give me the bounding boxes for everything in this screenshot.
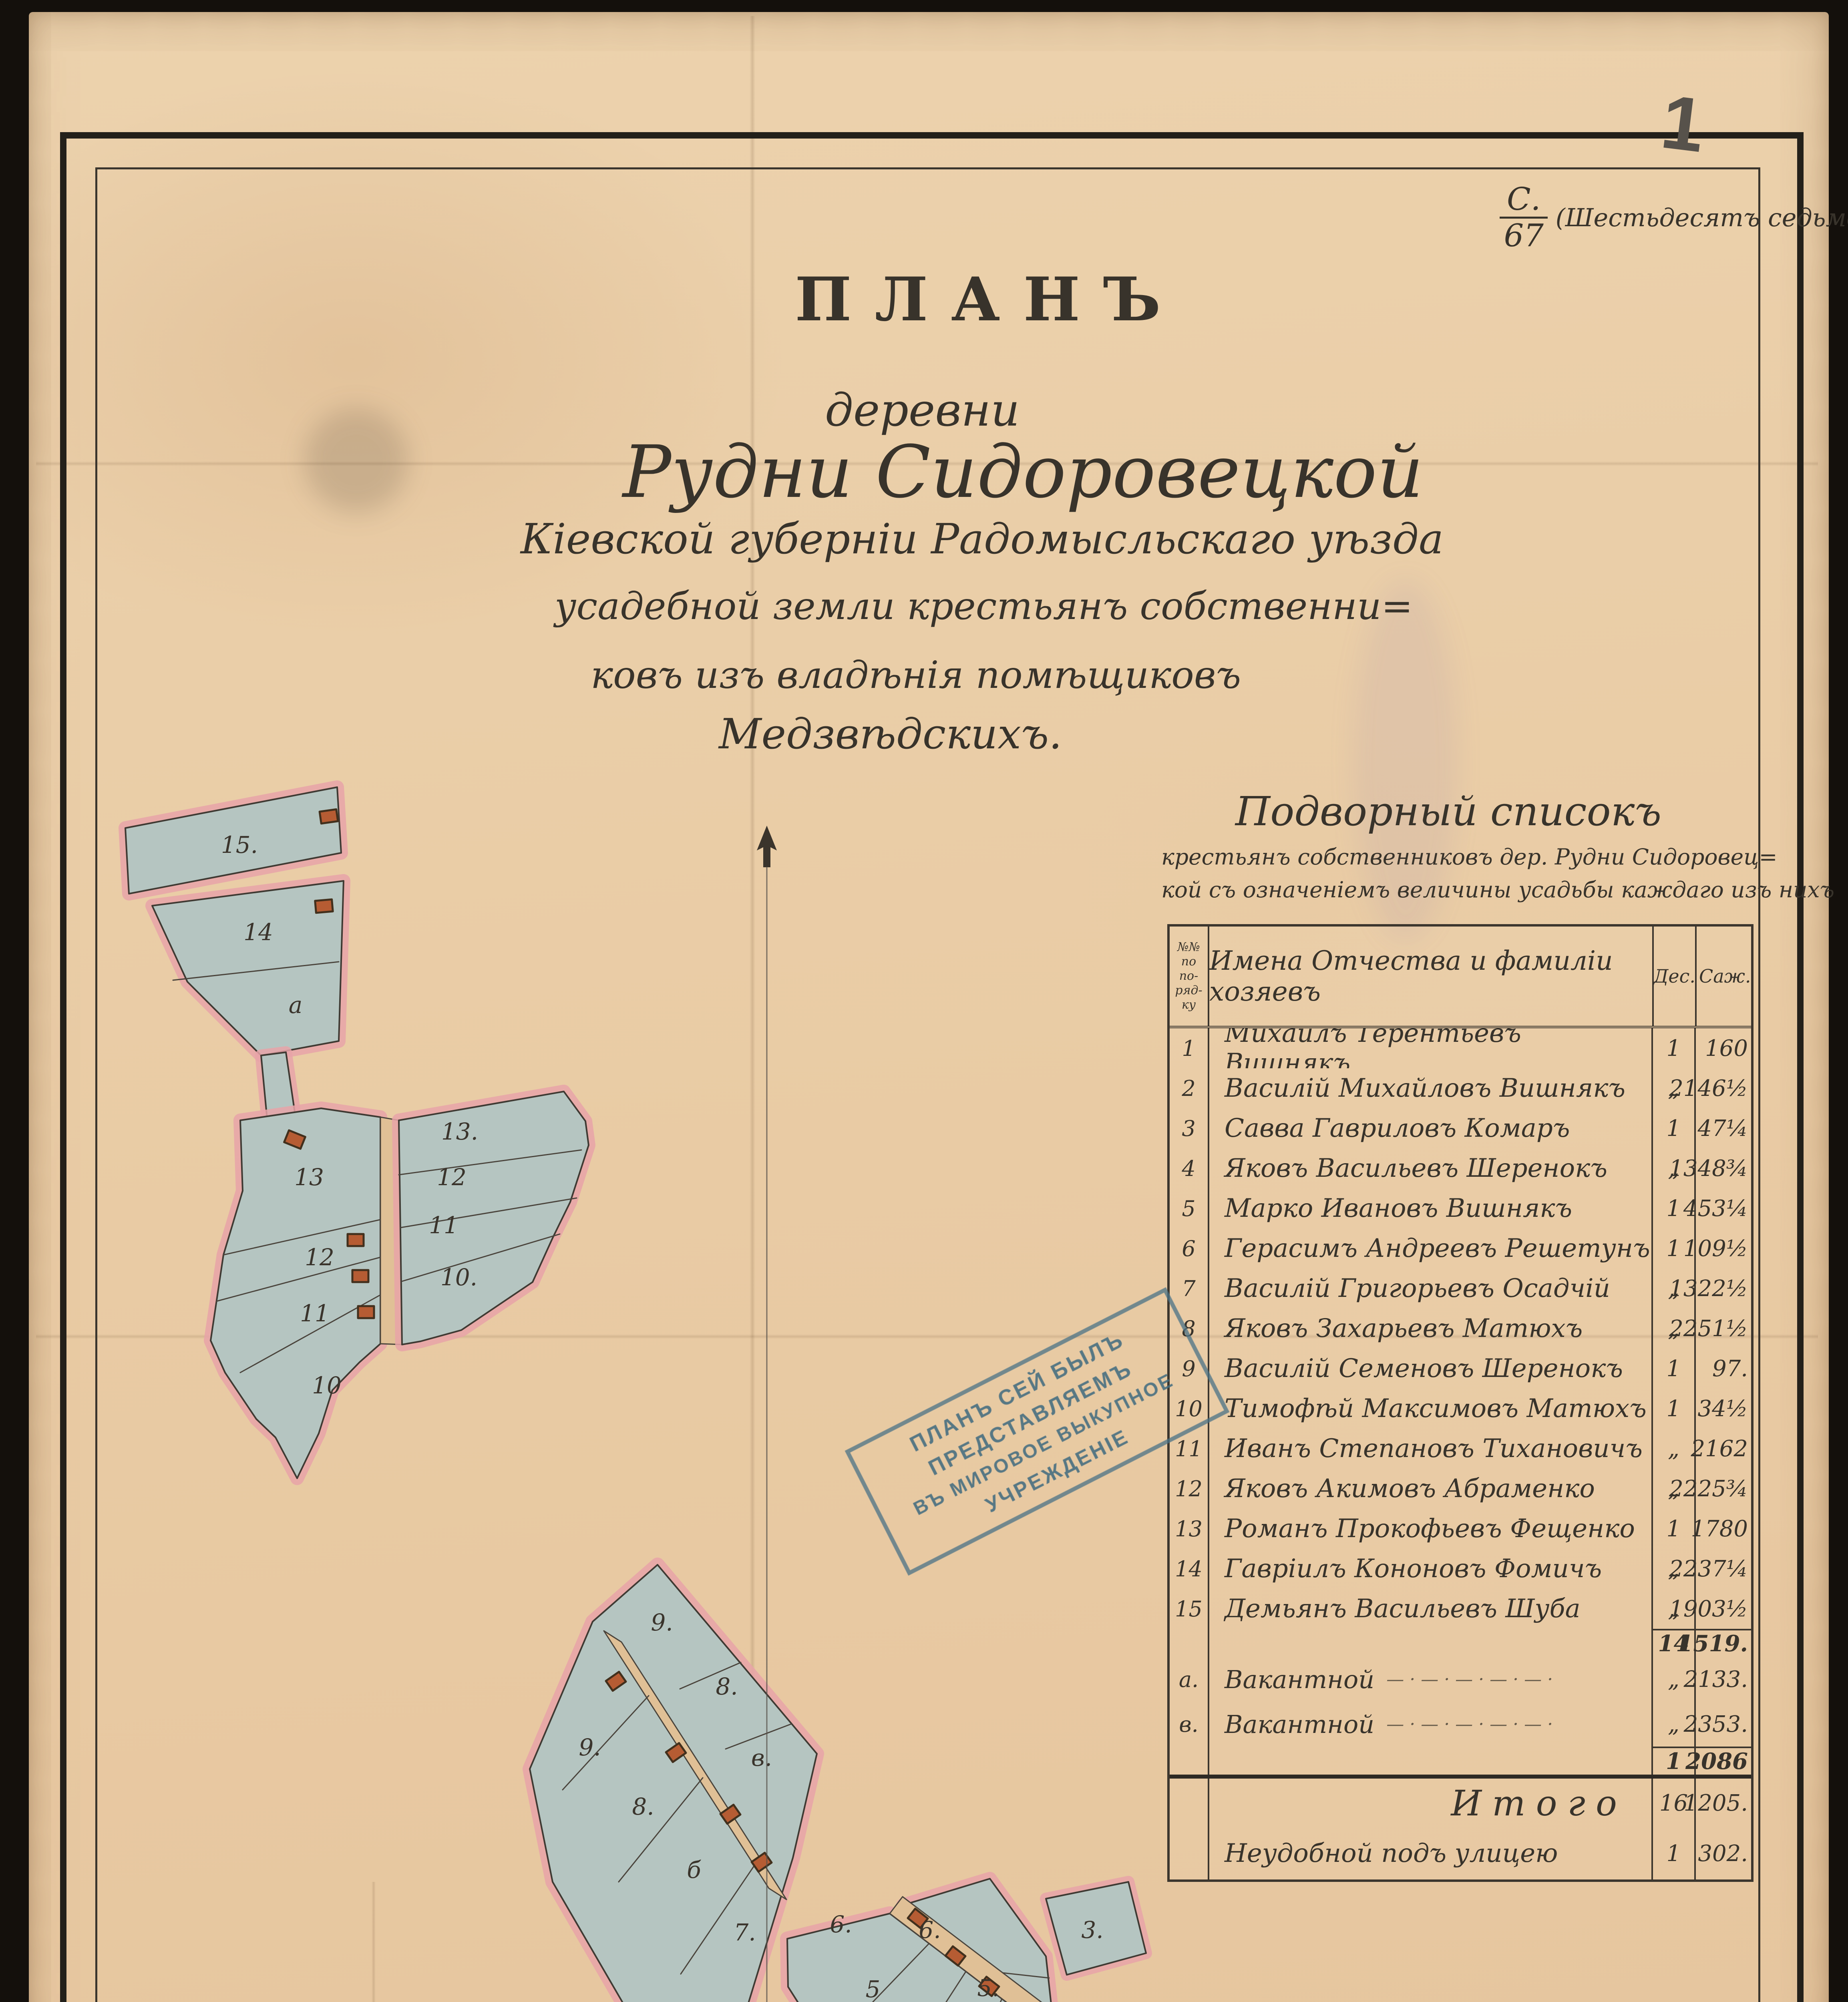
parcel-group-c — [787, 1879, 1226, 2002]
parcel-label: б — [687, 1856, 701, 1883]
parcels-13-10-east — [399, 1091, 589, 1345]
parcel-group-a — [125, 787, 589, 1478]
house-icon — [348, 1234, 364, 1246]
parcel-label: 5. — [977, 1974, 999, 2002]
parcel-label: 7. — [734, 1919, 756, 1946]
parcel-label: 8. — [632, 1793, 654, 1820]
parcel-label: 11 — [300, 1300, 330, 1327]
parcel-label: 6. — [830, 1911, 852, 1938]
parcel-label: в. — [751, 1744, 772, 1771]
parcel-label: а — [289, 991, 303, 1019]
parcel-label: 9. — [579, 1734, 601, 1761]
parcel-label: 12 — [437, 1164, 467, 1191]
parcel-label: 6. — [919, 1916, 941, 1944]
parcel-label: 3. — [1081, 1916, 1103, 1944]
house-icon — [358, 1306, 374, 1318]
house-icon — [315, 899, 333, 913]
north-arrow-head — [757, 826, 777, 867]
parcel-label: 11 — [429, 1212, 458, 1239]
parcel-label: 5 — [866, 1976, 881, 2002]
parcel-label: 8. — [716, 1673, 738, 1700]
scanned-cadastral-plan: 1 С. 67 (Шестьдесятъ седьмой) ПЛАНЪ дере… — [0, 0, 1848, 2002]
parcel-label: 13 — [294, 1164, 324, 1191]
parcel-label: 12 — [305, 1244, 334, 1271]
parcel-group-b — [530, 1565, 817, 2002]
map-canvas: 15. 14 а 13 12 11 10 13. 12 11 10. 9. 8.… — [0, 0, 1848, 2002]
parcel-label: 10. — [440, 1264, 477, 1291]
house-icon — [352, 1270, 368, 1282]
parcel-label: 10 — [312, 1372, 342, 1399]
house-icon — [320, 809, 338, 824]
parcel-label: 9. — [651, 1609, 673, 1636]
parcel-label: 13. — [441, 1118, 478, 1145]
parcel-label: 15. — [221, 831, 258, 858]
parcel-label: 14 — [243, 919, 273, 946]
